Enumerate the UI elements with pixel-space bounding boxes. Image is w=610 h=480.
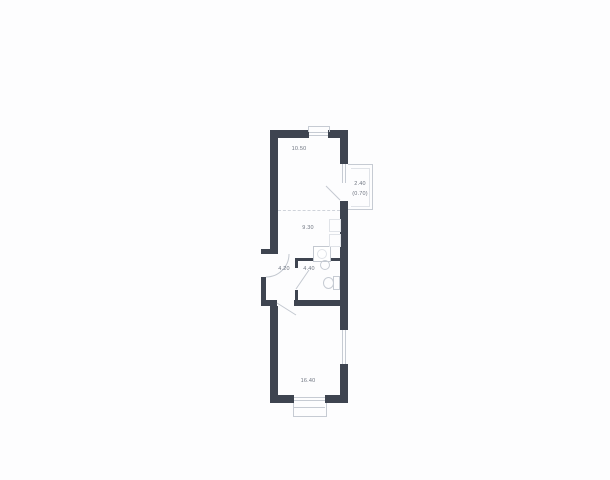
room-label-room-main: 16.40 <box>301 378 316 384</box>
window-bay-bottom-line <box>294 407 325 408</box>
washing-machine-drum <box>317 249 327 259</box>
room-label-kitchen-lower: 9.30 <box>302 225 314 231</box>
window-bottom-glazing <box>294 397 325 398</box>
room-label-balcony: 2.40 <box>354 181 366 187</box>
wall-top-left <box>270 130 309 138</box>
zone-divider-dashed <box>278 210 340 211</box>
wall-right-middle <box>340 201 348 330</box>
room-label-living-upper: 10.50 <box>292 146 307 152</box>
kitchen-unit-symbol <box>329 234 341 247</box>
wall-left-step <box>261 249 278 254</box>
window-bay-bottom <box>293 403 327 417</box>
window-balcony-glazing <box>342 164 343 183</box>
toilet-bowl-symbol <box>323 277 334 289</box>
wall-top-right <box>328 130 348 138</box>
window-top-glazing <box>309 135 328 136</box>
wall-bottom-left <box>270 395 294 403</box>
wall-left-upper <box>270 138 278 249</box>
toilet-tank-symbol <box>333 276 340 290</box>
wall-right-upper <box>340 138 348 164</box>
sink-symbol <box>320 260 330 270</box>
wall-bathroom-left-lower <box>295 290 298 300</box>
wall-bathroom-left-upper <box>295 258 298 268</box>
window-bottom-glazing <box>294 400 325 401</box>
balcony-door-leaf <box>326 186 340 200</box>
window-right-glazing <box>342 330 343 364</box>
window-right-glazing <box>345 330 346 364</box>
bathroom-door-leaf <box>296 270 309 289</box>
window-top-glazing <box>309 132 328 133</box>
room-label-hallway: 4.20 <box>278 266 290 272</box>
wall-hall-bottom-right <box>294 300 340 306</box>
floor-plan-canvas: 10.50 9.30 4.20 4.40 16.40 2.40 (0.70) <box>0 0 610 480</box>
wall-left-lower <box>270 306 278 395</box>
balcony-glazing-inner <box>351 168 370 207</box>
wall-bottom-right <box>325 395 348 403</box>
room-label-bathroom: 4.40 <box>303 266 315 272</box>
window-balcony-glazing <box>345 164 346 183</box>
kitchen-unit-symbol <box>329 219 341 232</box>
room-label-balcony-secondary: (0.70) <box>352 191 368 197</box>
